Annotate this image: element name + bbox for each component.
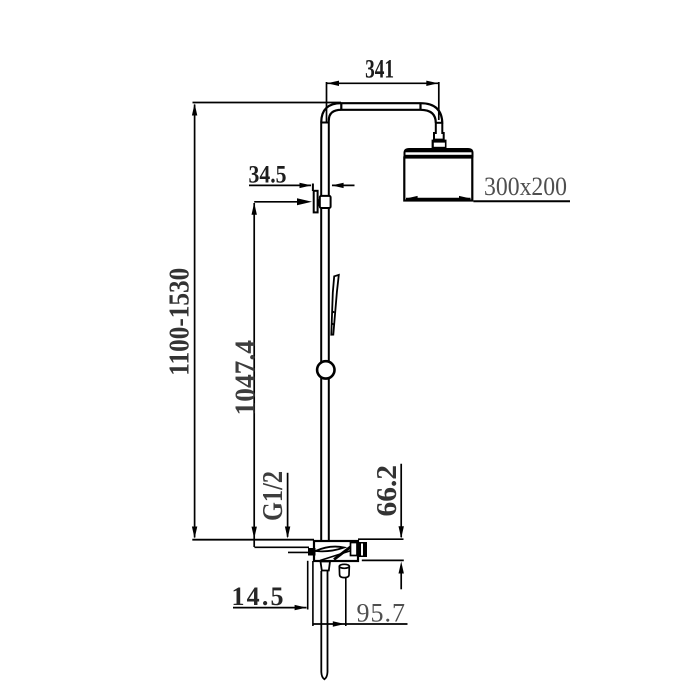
svg-text:14.5: 14.5 (232, 582, 284, 611)
svg-text:G1/2: G1/2 (258, 471, 289, 521)
svg-text:34.5: 34.5 (249, 161, 287, 188)
svg-text:1047.4: 1047.4 (231, 340, 262, 416)
svg-text:341: 341 (365, 55, 394, 84)
svg-text:1100-1530: 1100-1530 (165, 268, 196, 376)
svg-text:66.2: 66.2 (372, 465, 403, 517)
svg-text:300x200: 300x200 (484, 172, 567, 201)
svg-text:95.7: 95.7 (357, 599, 406, 628)
